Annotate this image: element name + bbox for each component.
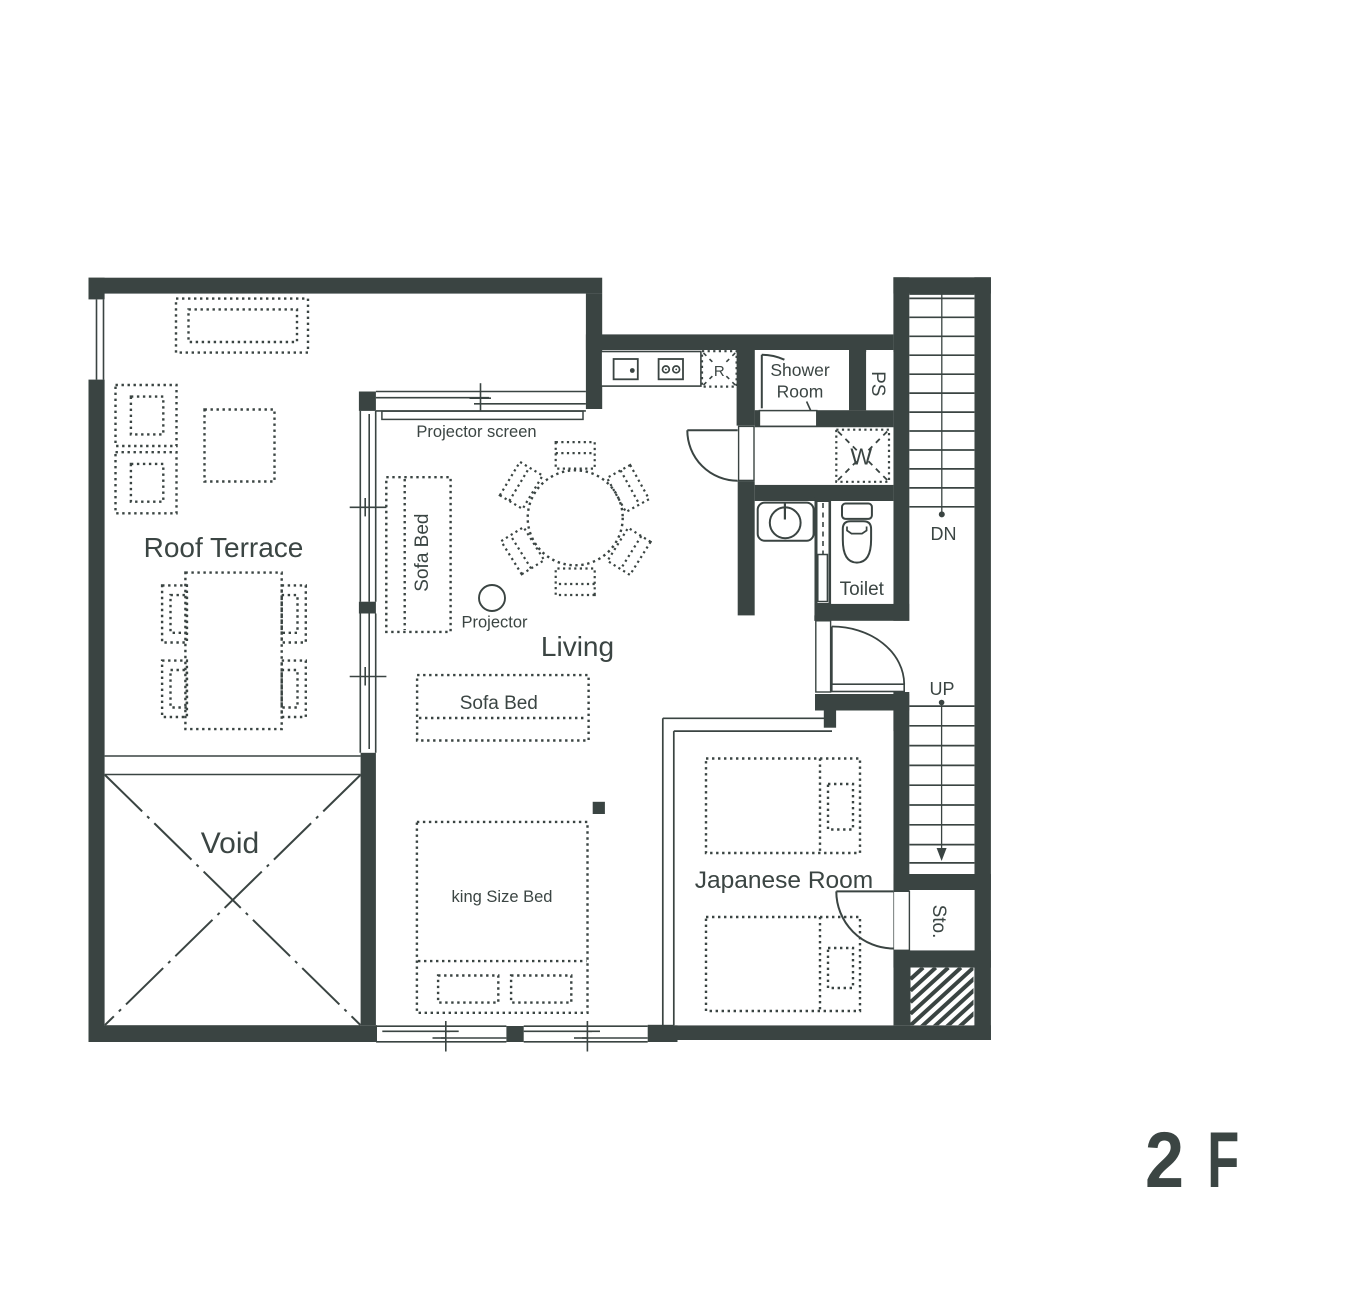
svg-text:2: 2 (1145, 1115, 1184, 1204)
svg-text:Room: Room (777, 382, 824, 402)
svg-text:W: W (850, 444, 872, 470)
svg-text:Sofa Bed: Sofa Bed (412, 514, 433, 592)
svg-text:Sofa Bed: Sofa Bed (460, 693, 538, 714)
svg-text:Japanese Room: Japanese Room (695, 867, 873, 894)
svg-text:Living: Living (541, 631, 614, 662)
svg-text:king Size Bed: king Size Bed (452, 888, 553, 906)
svg-text:F: F (1207, 1115, 1239, 1204)
svg-text:Projector: Projector (461, 614, 528, 632)
svg-text:Projector screen: Projector screen (416, 423, 536, 441)
svg-text:Roof Terrace: Roof Terrace (144, 532, 304, 563)
svg-text:UP: UP (929, 679, 954, 699)
svg-text:DN: DN (931, 524, 957, 544)
svg-text:Shower: Shower (770, 360, 830, 380)
svg-text:PS: PS (867, 371, 888, 396)
svg-text:Void: Void (201, 827, 259, 860)
svg-text:R: R (714, 363, 725, 380)
svg-text:Sto.: Sto. (928, 905, 949, 939)
svg-text:Toilet: Toilet (840, 579, 885, 600)
